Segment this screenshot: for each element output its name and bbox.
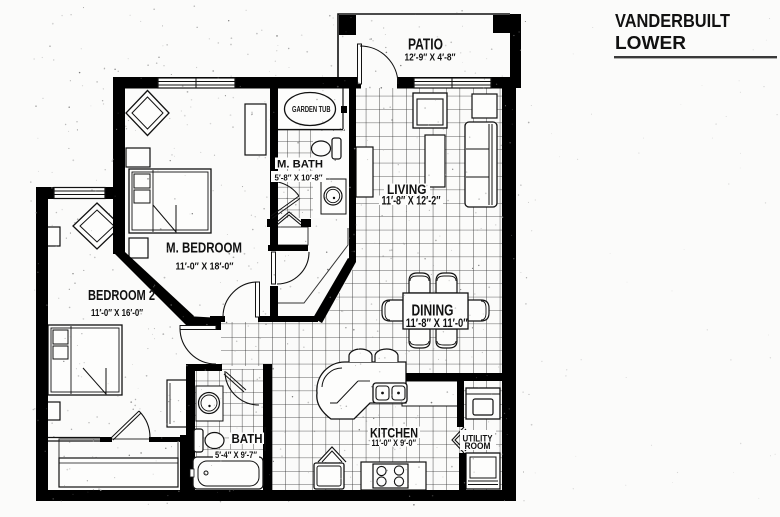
svg-text:BEDROOM 2: BEDROOM 2 <box>88 288 155 304</box>
svg-text:ROOM: ROOM <box>465 441 491 452</box>
svg-text:11′-0″ X 16′-0″: 11′-0″ X 16′-0″ <box>91 308 143 319</box>
svg-text:5′-8″ X 10′-8″: 5′-8″ X 10′-8″ <box>275 173 323 183</box>
svg-text:11′-8″ X 12′-2″: 11′-8″ X 12′-2″ <box>382 196 441 208</box>
svg-text:VANDERBUILT: VANDERBUILT <box>615 10 731 31</box>
svg-text:12′-9″ X 4′-8″: 12′-9″ X 4′-8″ <box>405 52 456 64</box>
svg-text:M. BEDROOM: M. BEDROOM <box>166 240 242 256</box>
svg-text:M. BATH: M. BATH <box>277 159 323 171</box>
svg-text:DINING: DINING <box>412 303 454 320</box>
svg-text:11′-0″ X 9′-0″: 11′-0″ X 9′-0″ <box>372 438 417 449</box>
svg-text:GARDEN TUB: GARDEN TUB <box>292 105 331 114</box>
svg-text:11′-8″ X 11′-0″: 11′-8″ X 11′-0″ <box>406 318 468 330</box>
svg-text:LOWER: LOWER <box>615 32 686 53</box>
svg-text:5′-4″ X 9′-7″: 5′-4″ X 9′-7″ <box>215 450 258 460</box>
svg-text:11′-0″ X 18′-0″: 11′-0″ X 18′-0″ <box>176 261 234 273</box>
